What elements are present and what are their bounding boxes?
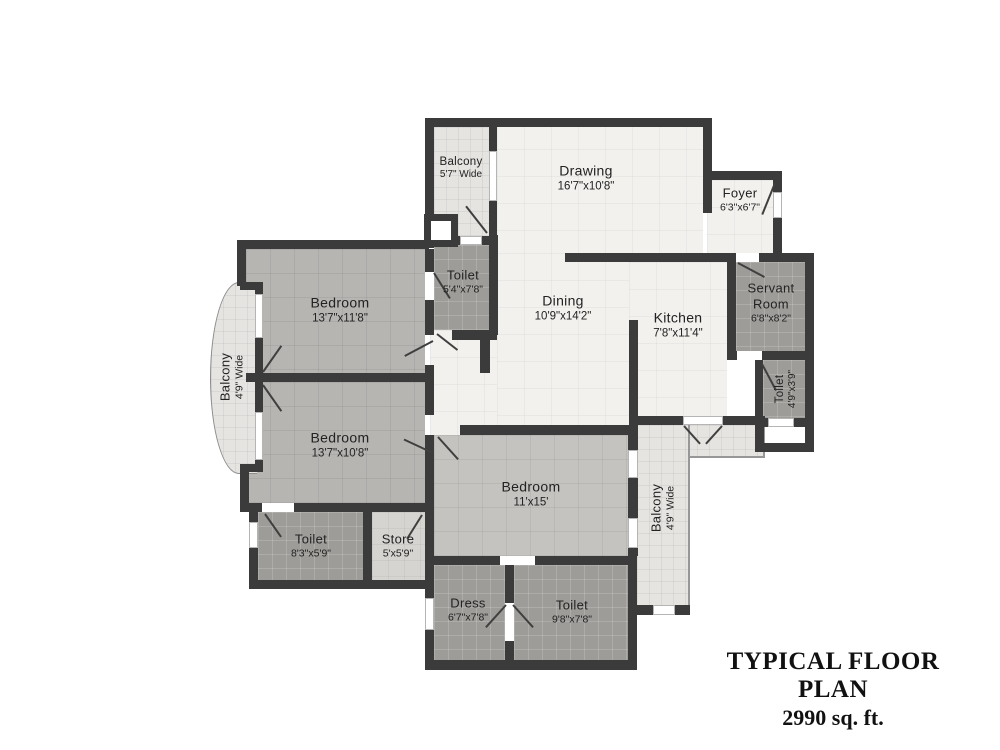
window: [628, 450, 638, 478]
wall: [460, 425, 637, 435]
wall: [249, 508, 258, 589]
room-label-bedroom-2: Bedroom 13'7"x10'8": [311, 429, 370, 460]
window: [249, 522, 258, 548]
wall: [363, 512, 372, 580]
plan-title-line1: TYPICAL FLOOR PLAN: [698, 648, 968, 704]
wall: [240, 282, 256, 290]
door-opening: [773, 192, 782, 218]
door-opening: [768, 418, 794, 427]
wall: [425, 365, 434, 415]
room-label-toilet-2: Toilet 8'3"x5'9": [291, 532, 331, 561]
wall: [249, 580, 434, 589]
floor-plan: Balcony 5'7" Wide Drawing 16'7"x10'8" Fo…: [0, 0, 1000, 750]
wall: [629, 416, 683, 425]
room-label-store: Store 5'x5'9": [382, 532, 415, 561]
room-label-kitchen: Kitchen 7'8"x11'4": [653, 309, 702, 340]
wall: [434, 556, 500, 565]
door-opening: [653, 605, 675, 615]
wall: [628, 556, 637, 670]
wall: [762, 351, 814, 360]
wall: [535, 556, 637, 565]
shaft-inner: [431, 221, 451, 240]
wall: [727, 351, 737, 360]
room-label-dress: Dress 6'7"x7'8": [448, 596, 488, 625]
wall: [425, 660, 637, 670]
wall: [425, 435, 434, 669]
wall: [489, 235, 498, 335]
wall: [703, 171, 782, 180]
room-label-drawing: Drawing 16'7"x10'8": [558, 162, 615, 193]
wall: [489, 199, 497, 235]
room-label-foyer: Foyer 6'3"x6'7": [720, 186, 760, 215]
wall: [565, 253, 736, 262]
wall: [237, 240, 429, 249]
room-label-servant-room: Servant Room 6'8"x8'2": [735, 281, 807, 326]
wall: [425, 300, 434, 335]
room-label-bedroom-1: Bedroom 13'7"x11'8": [311, 294, 370, 325]
door-opening: [683, 416, 723, 425]
wall: [480, 340, 490, 373]
wall: [755, 443, 814, 452]
dining-floor: [497, 253, 629, 430]
wall: [246, 503, 262, 512]
wall: [482, 236, 489, 245]
wall: [294, 503, 430, 512]
room-label-toilet-servant: Toilet 4'9"x3'9": [773, 370, 799, 408]
window: [425, 598, 434, 630]
room-label-toilet-top: Toilet 5'4"x7'8": [443, 268, 483, 297]
room-label-bedroom-3: Bedroom 11'x15': [502, 478, 561, 509]
wall: [755, 360, 763, 418]
room-label-balcony-left: Balcony 4'9" Wide: [218, 353, 247, 401]
room-label-toilet-3: Toilet 9'8"x7'8": [552, 598, 592, 627]
wall: [505, 565, 514, 603]
door-opening: [255, 294, 263, 338]
window: [460, 236, 482, 245]
plan-title-line2: 2990 sq. ft.: [698, 705, 968, 731]
room-label-dining: Dining 10'9"x14'2": [535, 292, 592, 323]
wall: [489, 127, 497, 153]
window: [489, 151, 497, 201]
wall: [237, 240, 246, 286]
wall: [425, 118, 712, 127]
wall: [505, 641, 514, 660]
wall: [425, 249, 434, 272]
room-label-balcony-top: Balcony 5'7" Wide: [439, 155, 482, 181]
wall: [805, 253, 814, 430]
room-label-balcony-right: Balcony 4'9" Wide: [649, 484, 678, 532]
window: [628, 518, 638, 548]
wall: [703, 118, 712, 213]
wall: [246, 373, 430, 382]
plan-title: TYPICAL FLOOR PLAN 2990 sq. ft.: [698, 648, 968, 731]
wall: [452, 330, 497, 340]
door-opening: [255, 412, 263, 460]
wall: [629, 320, 638, 425]
